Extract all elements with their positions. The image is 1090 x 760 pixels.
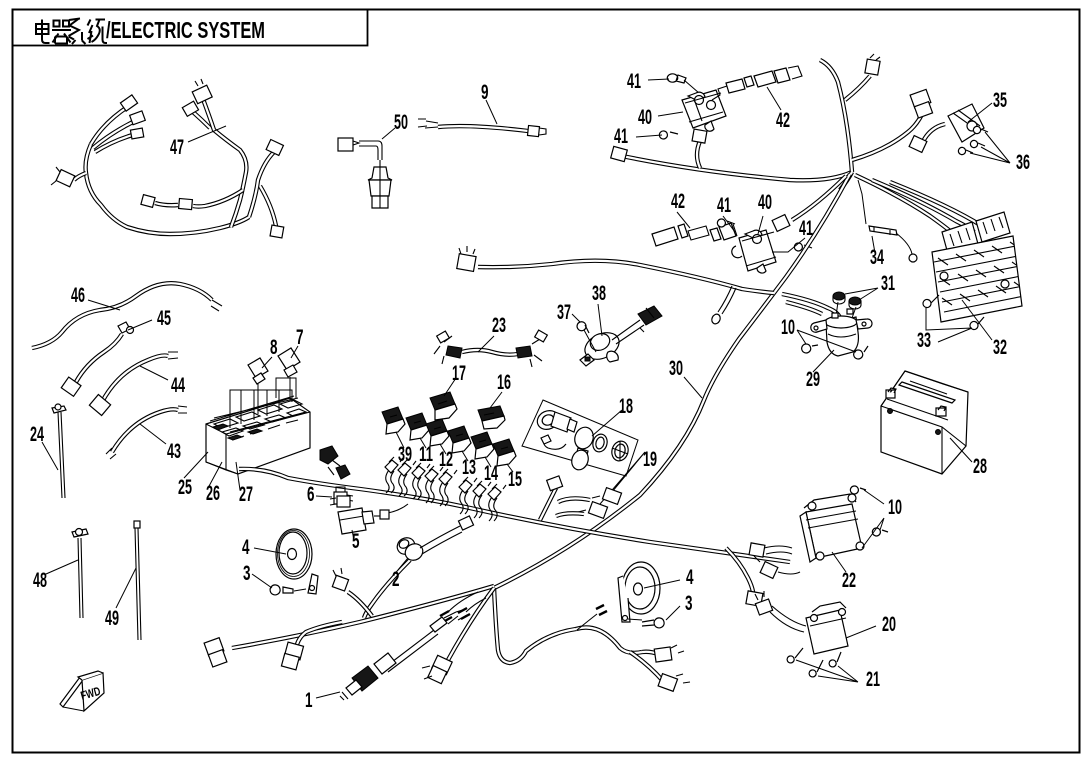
svg-text:40: 40 [638, 106, 652, 129]
svg-text:10: 10 [888, 496, 902, 519]
svg-text:32: 32 [993, 336, 1007, 359]
svg-text:5: 5 [352, 530, 360, 553]
svg-text:30: 30 [669, 357, 683, 380]
svg-text:34: 34 [870, 246, 884, 269]
svg-text:50: 50 [394, 111, 408, 134]
svg-text:11: 11 [419, 443, 433, 466]
svg-text:41: 41 [717, 194, 731, 217]
svg-text:1: 1 [305, 689, 313, 712]
svg-text:14: 14 [484, 462, 498, 485]
svg-text:37: 37 [557, 301, 571, 324]
svg-text:26: 26 [206, 482, 220, 505]
svg-text:46: 46 [71, 284, 85, 307]
svg-text:18: 18 [619, 395, 633, 418]
svg-text:39: 39 [398, 443, 412, 466]
svg-text:10: 10 [781, 316, 795, 339]
svg-text:36: 36 [1016, 151, 1030, 174]
svg-text:15: 15 [508, 468, 522, 491]
svg-text:2: 2 [392, 568, 400, 591]
svg-text:49: 49 [105, 607, 119, 630]
svg-text:12: 12 [439, 448, 453, 471]
svg-text:40: 40 [758, 191, 772, 214]
svg-text:24: 24 [30, 423, 44, 446]
svg-text:45: 45 [157, 307, 171, 330]
svg-text:22: 22 [842, 569, 856, 592]
svg-text:43: 43 [167, 440, 181, 463]
svg-text:7: 7 [296, 326, 304, 349]
svg-text:31: 31 [881, 272, 895, 295]
svg-text:3: 3 [243, 562, 251, 585]
svg-text:20: 20 [882, 613, 896, 636]
svg-text:9: 9 [481, 81, 489, 104]
svg-text:23: 23 [492, 314, 506, 337]
svg-text:4: 4 [686, 566, 694, 589]
svg-text:13: 13 [462, 456, 476, 479]
svg-text:42: 42 [776, 109, 790, 132]
svg-text:25: 25 [178, 476, 192, 499]
svg-text:38: 38 [592, 282, 606, 305]
svg-text:41: 41 [627, 70, 641, 93]
svg-text:8: 8 [270, 336, 278, 359]
svg-text:19: 19 [643, 448, 657, 471]
svg-text:29: 29 [806, 368, 820, 391]
svg-text:42: 42 [671, 190, 685, 213]
svg-text:44: 44 [171, 374, 185, 397]
svg-text:48: 48 [33, 569, 47, 592]
svg-text:28: 28 [973, 455, 987, 478]
svg-text:/ELECTRIC SYSTEM: /ELECTRIC SYSTEM [106, 17, 265, 43]
svg-text:41: 41 [799, 217, 813, 240]
svg-text:21: 21 [866, 668, 880, 691]
svg-text:17: 17 [452, 362, 466, 385]
svg-text:16: 16 [497, 371, 511, 394]
svg-text:4: 4 [242, 536, 250, 559]
svg-text:27: 27 [239, 483, 253, 506]
svg-text:6: 6 [307, 483, 315, 506]
svg-text:35: 35 [993, 89, 1007, 112]
svg-text:47: 47 [170, 136, 184, 159]
svg-text:3: 3 [685, 592, 693, 615]
svg-text:33: 33 [917, 329, 931, 352]
svg-text:41: 41 [614, 125, 628, 148]
